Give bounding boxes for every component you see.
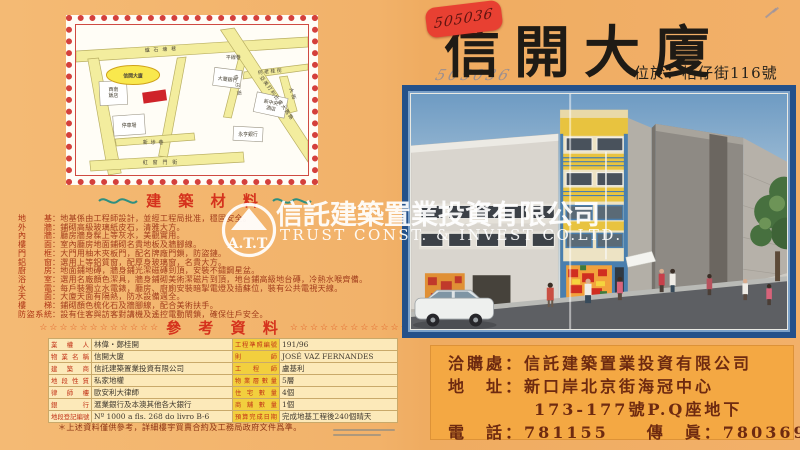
ref-value: JOSÉ VAZ FERNANDES (280, 351, 398, 363)
stars-right: ☆☆☆☆☆☆☆☆☆☆☆☆ (290, 323, 411, 333)
reference-footnote: ＊上述資料僅供參考，詳細樓宇買賣合約及工務局政府文件爲準。 (58, 422, 302, 433)
microprint-line (333, 429, 395, 431)
stars-left: ☆☆☆☆☆☆☆☆☆☆☆☆ (39, 323, 160, 333)
contact-line-address2: 173-177號P.Q座地下 (534, 396, 742, 420)
ref-label: 物業名稱 (49, 351, 92, 363)
map-label-street-bottom: 紅窗門街 (143, 159, 182, 166)
map-label-bank2: 永亨銀行 (238, 131, 258, 138)
ref-value: 1個 (280, 399, 398, 411)
location-map: 信開大廈 爐石塘巷 紅窗門街 新埗巷 桔仔街 何老桂街 平線巷 亞美打利比盧大馬… (66, 15, 318, 185)
table-row: 地段登記編號 Nº 1000 a fls. 268 do livro B-6 預… (49, 411, 398, 423)
material-text: ：鋪砌顏色梳化石及牆腳線，配合美術扶手。 (52, 301, 218, 310)
material-text: ：大廈天面有隔熱，防水設備週全。 (52, 292, 185, 301)
map-label-restaurant-2: 飯店 (108, 92, 118, 99)
ref-value: 信託建築置業投資有限公司 (92, 363, 233, 375)
contact-line-phone-fax: 電 話：781155 傳 眞：780369 (448, 419, 800, 443)
ref-label: 工程師 (233, 363, 280, 375)
material-text: ：地基係由工程師設計，並經工程局批准，穩固安全。 (52, 214, 251, 223)
fold-line (569, 94, 571, 329)
ref-value: 滙業銀行及本澳其他各大銀行 (92, 399, 233, 411)
ref-value: 林偉・鄭桂開 (92, 339, 233, 351)
map-label-street-mid: 新埗巷 (143, 139, 167, 146)
ref-label: 商舖數量 (233, 399, 280, 411)
flourish-right-icon (272, 196, 312, 206)
location-map-inner: 信開大廈 爐石塘巷 紅窗門街 新埗巷 桔仔街 何老桂街 平線巷 亞美打利比盧大馬… (75, 24, 309, 176)
building-illustration (411, 94, 787, 329)
ref-value: 私家地權 (92, 375, 233, 387)
sticker-handwriting: 505036 (434, 6, 494, 33)
ref-value: 5層 (280, 375, 398, 387)
table-row: 律師樓 歐安利大律師 住宅數量 4個 (49, 387, 398, 399)
map-label-restaurant-1: 西南 (108, 86, 118, 93)
ref-label: 地段登記編號 (49, 411, 92, 423)
brochure-scan: 信開大廈 爐石塘巷 紅窗門街 新埗巷 桔仔街 何老桂街 平線巷 亞美打利比盧大馬… (0, 0, 800, 450)
table-row: 銀行 滙業銀行及本澳其他各大銀行 商舖數量 1個 (49, 399, 398, 411)
microprint-line (333, 434, 381, 436)
ref-value: 信開大廈 (92, 351, 233, 363)
contact-line-sales: 洽購處：信託建築置業投資有限公司 (448, 350, 752, 374)
map-svg: 信開大廈 爐石塘巷 紅窗門街 新埗巷 桔仔街 何老桂街 平線巷 亞美打利比盧大馬… (76, 25, 308, 175)
ref-label: 則師 (233, 351, 280, 363)
table-row: 業權人 林偉・鄭桂開 工程準照編號 191/96 (49, 339, 398, 351)
illustration-frame-inner (410, 93, 788, 330)
ref-label: 地段性質 (49, 375, 92, 387)
reference-table: 業權人 林偉・鄭桂開 工程準照編號 191/96 物業名稱 信開大廈 則師 JO… (48, 338, 398, 423)
material-label: 防盜系統 (18, 311, 52, 320)
ref-value: 4個 (280, 387, 398, 399)
ref-label: 銀行 (49, 399, 92, 411)
ref-label: 預算完成日期 (233, 411, 280, 423)
printer-credit (333, 429, 395, 439)
ref-value: 歐安利大律師 (92, 387, 233, 399)
materials-header: 建 築 材 料 (10, 190, 400, 211)
ref-label: 住宅數量 (233, 387, 280, 399)
ref-value: 完成地基工程後240個晴天 (280, 411, 398, 423)
materials-section: 建 築 材 料 地 基：地基係由工程師設計，並經工程局批准，穩固安全。 外 牆：… (10, 190, 400, 319)
materials-rows: 地 基：地基係由工程師設計，並經工程局批准，穩固安全。 外 牆：鋪砌高級玻璃紙皮… (10, 215, 400, 319)
materials-title: 建 築 材 料 (146, 190, 264, 211)
material-text: ：選用名廠顏色潔具，牆身鋪砌美術潔磁片到頂，地台鋪高級地台磚，冷熱水喉齊備。 (52, 275, 367, 284)
ref-label: 律師樓 (49, 387, 92, 399)
ref-value: Nº 1000 a fls. 268 do livro B-6 (92, 411, 233, 423)
material-text: ：室內廳房地面鋪砌名貴地板及牆腳線。 (52, 240, 201, 249)
ref-value: 191/96 (280, 339, 398, 351)
table-row: 建築商 信託建築置業投資有限公司 工程師 盧基利 (49, 363, 398, 375)
material-text: ：地面鋪地磚，牆身鋪光潔磁磚到頂，安裝不鏽鋼星盆。 (52, 266, 260, 275)
contact-panel: 洽購處：信託建築置業投資有限公司 地 址：新口岸北京街海冠中心 173-177號… (430, 345, 794, 440)
map-label-street-lane: 平線巷 (226, 54, 241, 61)
ref-label: 物業層數量 (233, 375, 280, 387)
material-text: ：大門用柚木夾板門，配名牌廠門鎖，防盜鏈。 (52, 249, 226, 258)
reference-header: ☆☆☆☆☆☆☆☆☆☆☆☆ 參 考 資 料 ☆☆☆☆☆☆☆☆☆☆☆☆ (50, 317, 400, 338)
table-row: 地段性質 私家地權 物業層數量 5層 (49, 375, 398, 387)
ref-value: 盧基利 (280, 363, 398, 375)
ref-label: 業權人 (49, 339, 92, 351)
table-row: 物業名稱 信開大廈 則師 JOSÉ VAZ FERNANDES (49, 351, 398, 363)
map-label-carpark: 停車場 (122, 122, 137, 129)
map-subject-label: 信開大廈 (123, 72, 143, 79)
ref-label: 建築商 (49, 363, 92, 375)
pencil-mark (772, 7, 778, 13)
ref-label: 工程準照編號 (233, 339, 280, 351)
contact-line-address: 地 址：新口岸北京街海冠中心 (448, 373, 714, 397)
illustration-frame (402, 85, 796, 338)
reference-title: 參 考 資 料 (166, 317, 284, 338)
flourish-left-icon (98, 196, 138, 206)
